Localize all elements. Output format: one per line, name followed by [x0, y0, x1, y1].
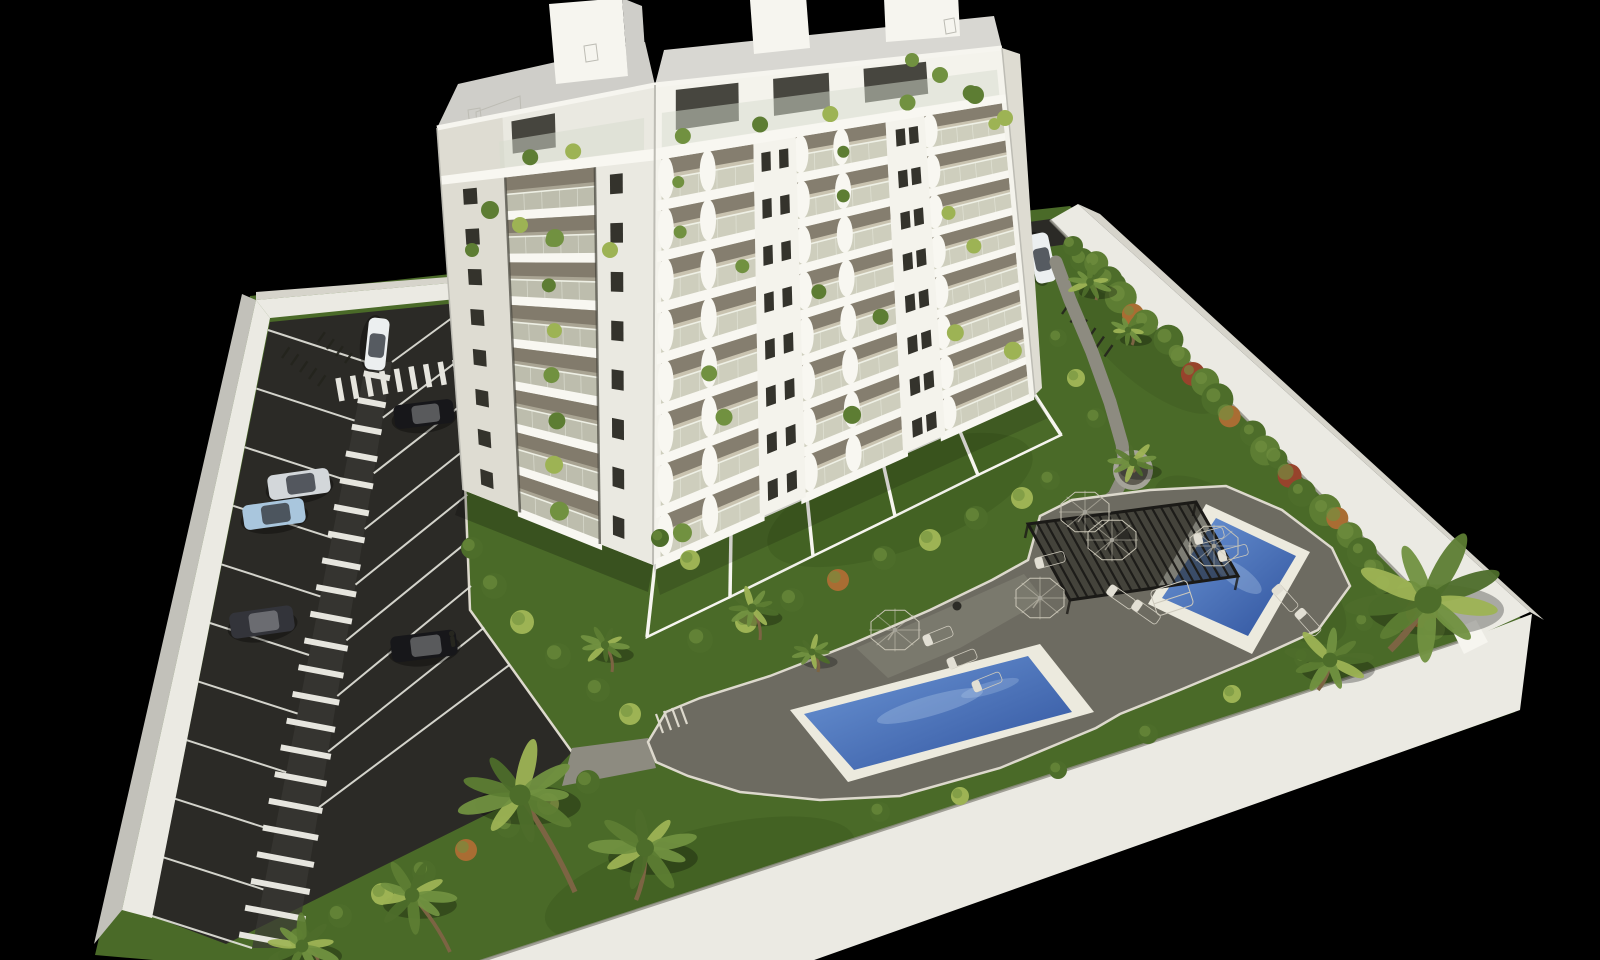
shrub — [1138, 724, 1158, 744]
shrub-highlight — [1050, 331, 1060, 341]
shrub-highlight — [874, 548, 887, 561]
shrub — [1067, 369, 1085, 387]
shrub-highlight — [1042, 472, 1053, 483]
window — [470, 309, 484, 326]
shrub — [1223, 685, 1241, 703]
palm-crown — [1129, 458, 1137, 466]
shrub — [576, 770, 600, 794]
window — [473, 349, 487, 367]
curved-balcony-screen — [840, 304, 856, 341]
window — [780, 194, 790, 215]
shrub-highlight — [652, 531, 662, 541]
palm-crown — [601, 641, 609, 649]
window — [612, 467, 624, 490]
window — [914, 207, 924, 226]
roof-terrace-plant — [481, 201, 499, 219]
window — [475, 389, 489, 408]
window — [900, 211, 910, 230]
parasol — [1188, 525, 1240, 568]
balcony-plant — [543, 367, 559, 383]
parasol — [1086, 519, 1138, 562]
parasol-tip — [1083, 510, 1087, 514]
parasol-tip — [1212, 544, 1216, 548]
window — [468, 269, 482, 285]
penthouse-plant — [900, 95, 916, 111]
shrub-highlight — [966, 508, 979, 521]
curved-balcony-screen — [658, 259, 674, 302]
window — [905, 293, 916, 313]
shrub-highlight — [330, 906, 343, 919]
window — [465, 228, 480, 244]
balcony-plant — [673, 523, 692, 542]
hedge-highlight — [1315, 500, 1327, 512]
aerial-site-render: Aerial 3D architectural rendering on a b… — [0, 0, 1600, 960]
palm-crown — [509, 784, 530, 805]
shrub — [680, 550, 700, 570]
balcony-plant — [735, 259, 749, 273]
roof-terrace-plant — [602, 242, 618, 258]
shrub-highlight — [463, 539, 475, 551]
penthouse-plant — [675, 128, 691, 144]
palm-crown — [748, 604, 757, 613]
hedge-highlight — [1326, 507, 1340, 521]
railing-mullion — [542, 191, 543, 209]
hedge-highlight — [1124, 305, 1134, 315]
parasol — [869, 609, 921, 652]
car-cabin — [248, 610, 280, 634]
window — [903, 252, 914, 271]
window — [762, 198, 772, 219]
shrub-highlight — [457, 841, 469, 853]
shrub-highlight — [1140, 726, 1151, 737]
curved-balcony-screen — [701, 298, 717, 339]
shrub-highlight — [578, 772, 591, 785]
curved-balcony-screen — [657, 462, 673, 505]
shrub — [1011, 487, 1033, 509]
roof-terrace-plant — [966, 86, 984, 104]
railing-mullion — [546, 325, 547, 343]
hedge-highlight — [1184, 365, 1194, 375]
penthouse-plant — [752, 117, 768, 133]
railing-mullion — [543, 236, 544, 254]
window — [610, 173, 623, 194]
balcony-plant — [966, 239, 981, 254]
shrub-highlight — [682, 552, 693, 563]
shrub — [780, 588, 804, 612]
shrub — [951, 787, 969, 805]
fire-bowl — [953, 602, 962, 611]
shrub — [328, 904, 352, 928]
shrub-highlight — [621, 705, 633, 717]
window — [463, 188, 478, 205]
curved-balcony-screen — [839, 260, 855, 297]
palm-crown — [1086, 278, 1094, 286]
shrub — [1086, 408, 1106, 428]
window — [785, 378, 795, 400]
shrub — [919, 529, 941, 551]
palm-crown — [1125, 327, 1131, 333]
car-cabin — [411, 403, 441, 424]
roof-terrace-plant — [465, 243, 479, 257]
palm-crown — [296, 940, 309, 953]
balcony-plant — [811, 284, 826, 299]
window — [919, 289, 930, 309]
window — [782, 286, 792, 307]
window — [786, 424, 796, 447]
shrub-highlight — [483, 575, 497, 589]
shrub — [651, 529, 669, 547]
window — [909, 126, 919, 144]
hedge-highlight — [1218, 404, 1234, 420]
window — [612, 369, 624, 391]
hedge-highlight — [1293, 484, 1303, 494]
window — [911, 167, 921, 186]
hedge-highlight — [1135, 313, 1147, 325]
balcony-plant — [547, 323, 562, 338]
hedge-highlight — [1195, 372, 1207, 384]
hedge-plant — [1063, 236, 1083, 256]
shrub — [586, 678, 610, 702]
curved-balcony-screen — [701, 396, 717, 437]
balcony-plant — [550, 502, 569, 521]
curved-balcony-screen — [702, 494, 718, 535]
hedge-highlight — [1255, 441, 1267, 453]
hedge-highlight — [1244, 424, 1254, 434]
balcony-plant — [672, 176, 684, 188]
balcony-plant — [542, 278, 556, 292]
window — [783, 332, 793, 354]
shrub-highlight — [921, 531, 933, 543]
penthouse-plant — [565, 143, 581, 159]
window — [764, 291, 774, 313]
curved-balcony-screen — [700, 199, 716, 240]
car-cabin — [260, 502, 291, 525]
window — [766, 385, 776, 407]
shrub — [455, 839, 477, 861]
car-cabin — [410, 634, 443, 657]
roof-terrace-plant — [546, 229, 564, 247]
window — [610, 223, 623, 243]
balcony-plant — [941, 206, 955, 220]
hedge-highlight — [1353, 543, 1363, 553]
curved-balcony-screen — [658, 360, 674, 403]
palm-crown — [636, 839, 654, 857]
roof-stair-bulkhead — [884, 0, 960, 42]
shrub — [461, 537, 483, 559]
hedge-highlight — [1086, 253, 1098, 265]
palm-crown — [808, 648, 815, 655]
balcony-plant — [837, 146, 849, 158]
shrub-highlight — [1068, 371, 1078, 381]
window — [907, 334, 918, 354]
curved-balcony-screen — [700, 150, 716, 191]
shrub — [1049, 761, 1067, 779]
shrub — [1049, 329, 1067, 347]
shrub-highlight — [512, 612, 525, 625]
roof-stair-bulkhead — [750, 0, 810, 54]
shrub — [545, 643, 571, 669]
curved-balcony-screen — [658, 208, 674, 251]
window — [781, 240, 791, 261]
palm-crown — [1323, 653, 1338, 668]
balcony-plant — [873, 309, 889, 325]
window — [611, 272, 624, 292]
shrub-highlight — [1050, 763, 1060, 773]
window — [896, 128, 906, 146]
curved-balcony-screen — [658, 309, 674, 352]
hedge-highlight — [1206, 388, 1220, 402]
roof-terrace-plant — [932, 67, 948, 83]
curved-balcony-screen — [702, 445, 718, 486]
balcony-plant — [843, 406, 861, 424]
curved-balcony-screen — [846, 435, 862, 472]
shrub-highlight — [952, 789, 962, 799]
parasol-tip — [1038, 596, 1042, 600]
shrub — [872, 546, 896, 570]
hedge-highlight — [1278, 464, 1294, 480]
window — [765, 338, 775, 360]
window — [763, 245, 773, 266]
balcony-plant — [1004, 342, 1022, 360]
parasol — [1059, 491, 1111, 534]
balcony-plant — [545, 456, 563, 474]
curved-balcony-screen — [658, 157, 674, 200]
balcony-plant — [548, 412, 565, 429]
render-viewport: Aerial 3D architectural rendering on a b… — [0, 0, 1600, 960]
parasol-tip — [893, 628, 897, 632]
shrub — [619, 703, 641, 725]
car-cabin — [285, 472, 316, 495]
shrub-highlight — [1356, 615, 1366, 625]
window — [767, 431, 777, 454]
roof-stair-bulkhead — [549, 0, 628, 84]
curved-balcony-screen — [842, 347, 858, 384]
balcony-plant — [716, 409, 733, 426]
shrub-highlight — [782, 590, 795, 603]
curved-balcony-screen — [700, 248, 716, 289]
shrub-highlight — [872, 804, 883, 815]
parasol-tip — [1110, 538, 1114, 542]
window — [612, 418, 624, 440]
balcony-plant — [674, 225, 687, 238]
shrub — [827, 569, 849, 591]
shrub-highlight — [1224, 687, 1234, 697]
curved-balcony-screen — [657, 411, 673, 454]
shrub-highlight — [547, 645, 561, 659]
shrub — [964, 506, 988, 530]
balcony-plant — [947, 324, 964, 341]
roof-terrace-plant — [905, 53, 919, 67]
hedge-highlight — [1169, 345, 1185, 361]
hedge-highlight — [1338, 523, 1354, 539]
curved-balcony-screen — [837, 216, 853, 253]
shrub-highlight — [588, 680, 601, 693]
palm-crown — [1414, 586, 1441, 613]
shrub — [870, 802, 890, 822]
car-cabin — [368, 333, 386, 358]
shrub-highlight — [1013, 489, 1025, 501]
shrub — [687, 627, 713, 653]
roof-terrace-plant — [997, 110, 1013, 126]
shrub — [1040, 470, 1060, 490]
window — [898, 170, 908, 189]
shrub — [481, 573, 507, 599]
hedge-highlight — [1266, 448, 1280, 462]
shrub-highlight — [1088, 410, 1099, 421]
parasol — [1014, 577, 1066, 620]
balcony-shadow — [509, 262, 596, 277]
window — [916, 248, 927, 267]
window — [761, 151, 771, 172]
shrub-highlight — [829, 571, 841, 583]
window — [779, 148, 789, 168]
shrub — [510, 610, 534, 634]
balcony-slab — [506, 253, 599, 263]
shrub-highlight — [689, 629, 703, 643]
hedge-highlight — [1157, 329, 1171, 343]
roof-terrace-plant — [512, 217, 528, 233]
penthouse-plant — [822, 106, 838, 122]
window — [611, 321, 623, 342]
balcony-plant — [701, 365, 717, 381]
penthouse-plant — [522, 149, 538, 165]
palm-crown — [405, 888, 420, 903]
balcony-plant — [837, 189, 850, 202]
hedge-highlight — [1064, 237, 1074, 247]
